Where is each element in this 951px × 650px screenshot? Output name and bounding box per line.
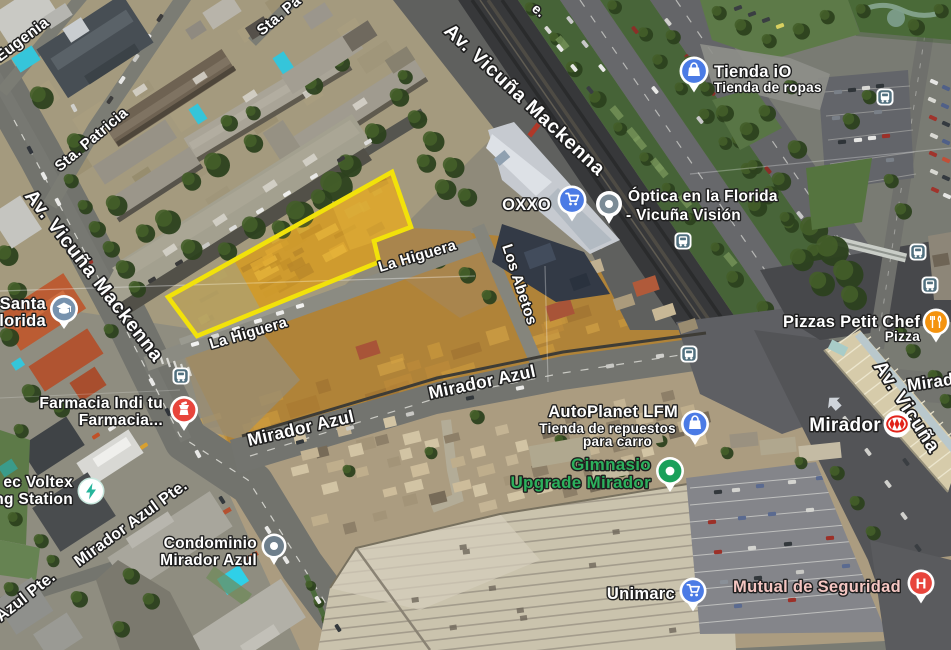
svg-text:Tienda de ropas: Tienda de ropas <box>714 80 822 95</box>
svg-text:para carro: para carro <box>583 434 652 449</box>
svg-text:AutoPlanet LFM: AutoPlanet LFM <box>548 403 678 421</box>
svg-text:Gimnasio: Gimnasio <box>571 455 651 474</box>
svg-text:OXXO: OXXO <box>502 196 551 214</box>
svg-text:Mirador: Mirador <box>809 415 881 436</box>
svg-text:- Vicuña Visión: - Vicuña Visión <box>626 207 741 224</box>
svg-text:florida: florida <box>0 312 47 330</box>
svg-text:Tienda iO: Tienda iO <box>714 63 792 81</box>
svg-text:Condominio: Condominio <box>164 535 257 552</box>
svg-text:Farmacia...: Farmacia... <box>79 412 163 429</box>
svg-text:Óptica en la Florida: Óptica en la Florida <box>628 187 778 205</box>
svg-text:Pizza: Pizza <box>885 329 920 344</box>
svg-text:Santa: Santa <box>0 295 47 313</box>
svg-text:Farmacia Indi tu: Farmacia Indi tu <box>39 395 163 412</box>
svg-text:ng Station: ng Station <box>0 491 73 508</box>
svg-text:Upgrade Mirador: Upgrade Mirador <box>510 473 651 492</box>
svg-text:Unimarc: Unimarc <box>607 585 675 603</box>
svg-text:ec Voltex: ec Voltex <box>3 474 73 491</box>
svg-text:Mirador Azul: Mirador Azul <box>160 552 257 569</box>
svg-text:H: H <box>916 576 927 593</box>
svg-text:Mutual de Seguridad: Mutual de Seguridad <box>733 578 901 596</box>
